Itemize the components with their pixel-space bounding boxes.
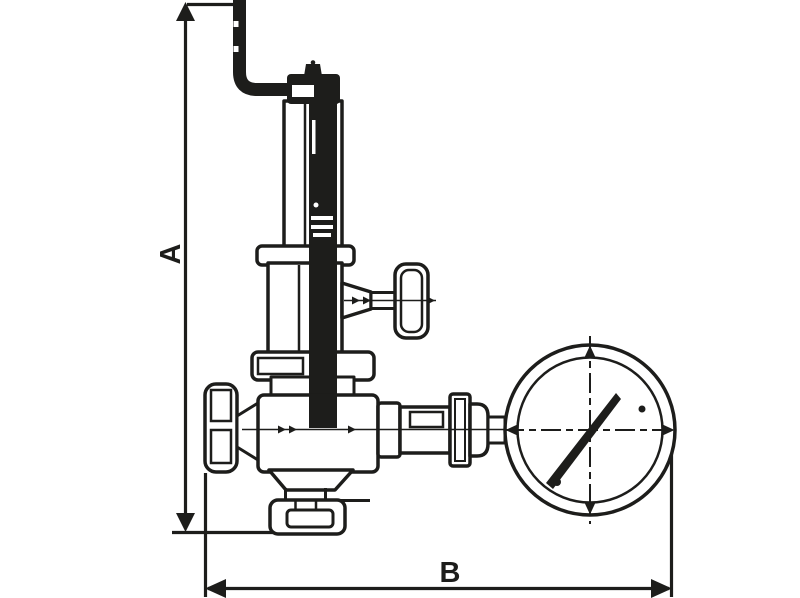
handwheel-stem-cone bbox=[237, 403, 258, 460]
centerline-arrow-icon bbox=[427, 297, 435, 305]
pipe-tick bbox=[234, 21, 239, 27]
gauge-dial-dot bbox=[639, 406, 646, 413]
outlet-flange bbox=[270, 500, 345, 534]
valve-dimensional-drawing: A B bbox=[0, 0, 800, 598]
housing-cap-window bbox=[292, 85, 314, 97]
stem-highlight bbox=[312, 120, 316, 154]
arrow-left-icon bbox=[205, 579, 226, 598]
valve-body bbox=[258, 395, 378, 501]
discharge-pipe-run bbox=[240, 0, 292, 90]
arrow-down-icon bbox=[176, 513, 195, 532]
body-taper bbox=[269, 470, 353, 490]
pipe-tick bbox=[234, 46, 239, 52]
arrow-right-icon bbox=[651, 579, 672, 598]
stem-thread-mark bbox=[311, 216, 333, 220]
discharge-pipe bbox=[234, 0, 292, 90]
handwheel bbox=[205, 384, 258, 472]
stem-thread-mark bbox=[313, 233, 331, 237]
side-branch-tee-handle bbox=[342, 264, 436, 338]
dimension-b-label: B bbox=[440, 557, 461, 589]
pressure-gauge bbox=[504, 336, 677, 524]
dimension-a-label: A bbox=[155, 243, 187, 264]
drawing-page: A B bbox=[0, 0, 800, 598]
gauge-dial-dot bbox=[553, 478, 561, 486]
outlet-flange-inner bbox=[287, 510, 333, 527]
spring-housing bbox=[252, 60, 374, 429]
stem-dot bbox=[314, 203, 319, 208]
stem-thread-mark bbox=[311, 225, 333, 229]
body-stem-section bbox=[309, 396, 337, 428]
